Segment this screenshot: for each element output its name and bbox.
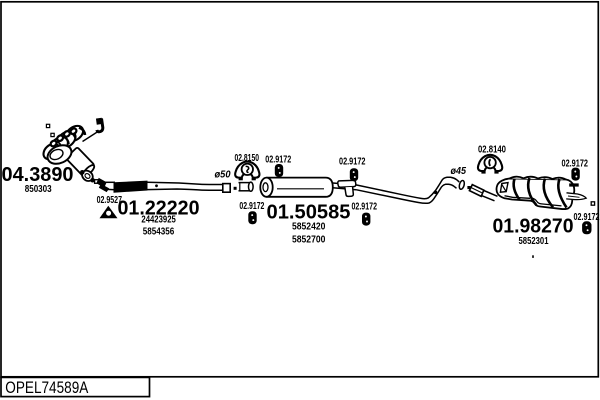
svg-text:24423925: 24423925	[141, 214, 176, 226]
svg-text:02.9172: 02.9172	[562, 158, 589, 170]
svg-text:5852420: 5852420	[292, 220, 326, 232]
svg-text:02.8150: 02.8150	[235, 152, 260, 164]
svg-text:02.9172: 02.9172	[352, 201, 378, 213]
svg-text:02.9172: 02.9172	[265, 154, 291, 166]
svg-text:850303: 850303	[25, 183, 52, 195]
svg-text:OPEL74589A: OPEL74589A	[5, 379, 88, 397]
svg-text:5852301: 5852301	[519, 235, 549, 247]
svg-text:01.98270: 01.98270	[493, 215, 574, 237]
svg-text:ø50: ø50	[215, 169, 231, 181]
svg-text:02.9527: 02.9527	[97, 194, 122, 206]
svg-text:5852700: 5852700	[292, 234, 326, 246]
svg-text:02.9172: 02.9172	[239, 200, 264, 212]
svg-text:ø45: ø45	[451, 165, 467, 177]
svg-text:02.9172: 02.9172	[574, 211, 600, 223]
svg-text:02.9172: 02.9172	[339, 156, 366, 168]
svg-text:02.8140: 02.8140	[478, 144, 506, 156]
svg-text:5854356: 5854356	[143, 225, 175, 237]
